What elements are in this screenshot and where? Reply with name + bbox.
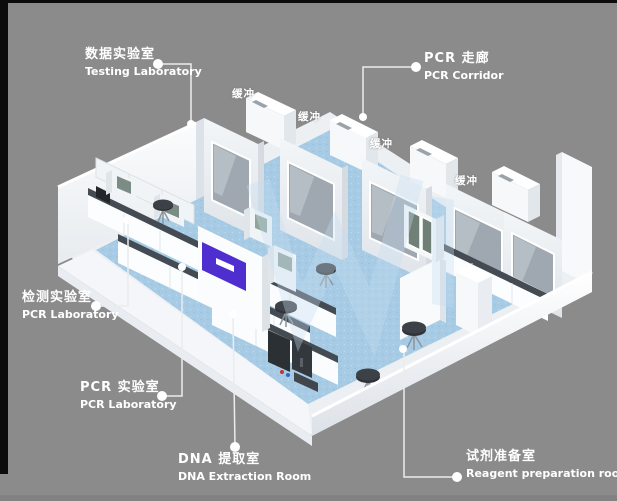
buffer-tag-1: 缓冲 — [232, 86, 255, 101]
label-dna-room: DNA 提取室 DNA Extraction Room — [178, 453, 311, 484]
label-pcr-lab: PCR 实验室 PCR Laboratory — [80, 381, 177, 412]
label-testing-lab-zh: 数据实验室 — [85, 48, 202, 63]
buffer-tag-4: 缓冲 — [455, 173, 478, 188]
label-pcr-lab-zh: PCR 实验室 — [80, 381, 177, 396]
label-detection-lab: 检测实验室 PCR Laboratory — [22, 291, 119, 322]
label-reagent-room: 试剂准备室 Reagent preparation room — [466, 450, 617, 481]
label-dna-room-zh: DNA 提取室 — [178, 453, 311, 468]
top-edge-bar — [0, 0, 617, 3]
label-detection-lab-zh: 检测实验室 — [22, 291, 119, 306]
label-testing-lab-en: Testing Laboratory — [85, 66, 202, 79]
label-pcr-lab-en: PCR Laboratory — [80, 399, 177, 412]
lab-floorplan-illustration: 数据实验室 Testing Laboratory PCR 走廊 PCR Corr… — [0, 0, 617, 501]
left-edge-bar — [0, 0, 8, 474]
label-detection-lab-en: PCR Laboratory — [22, 309, 119, 322]
label-pcr-corridor: PCR 走廊 PCR Corridor — [424, 52, 504, 83]
leader-pcr-corridor — [363, 67, 416, 117]
label-pcr-corridor-en: PCR Corridor — [424, 70, 504, 83]
label-reagent-room-zh: 试剂准备室 — [466, 450, 617, 465]
label-testing-lab: 数据实验室 Testing Laboratory — [85, 48, 202, 79]
buffer-tag-3: 缓冲 — [370, 136, 393, 151]
buffer-tag-2: 缓冲 — [298, 109, 321, 124]
label-pcr-corridor-zh: PCR 走廊 — [424, 52, 504, 67]
label-dna-room-en: DNA Extraction Room — [178, 471, 311, 484]
label-reagent-room-en: Reagent preparation room — [466, 468, 617, 481]
bottom-edge-strip — [0, 495, 617, 501]
